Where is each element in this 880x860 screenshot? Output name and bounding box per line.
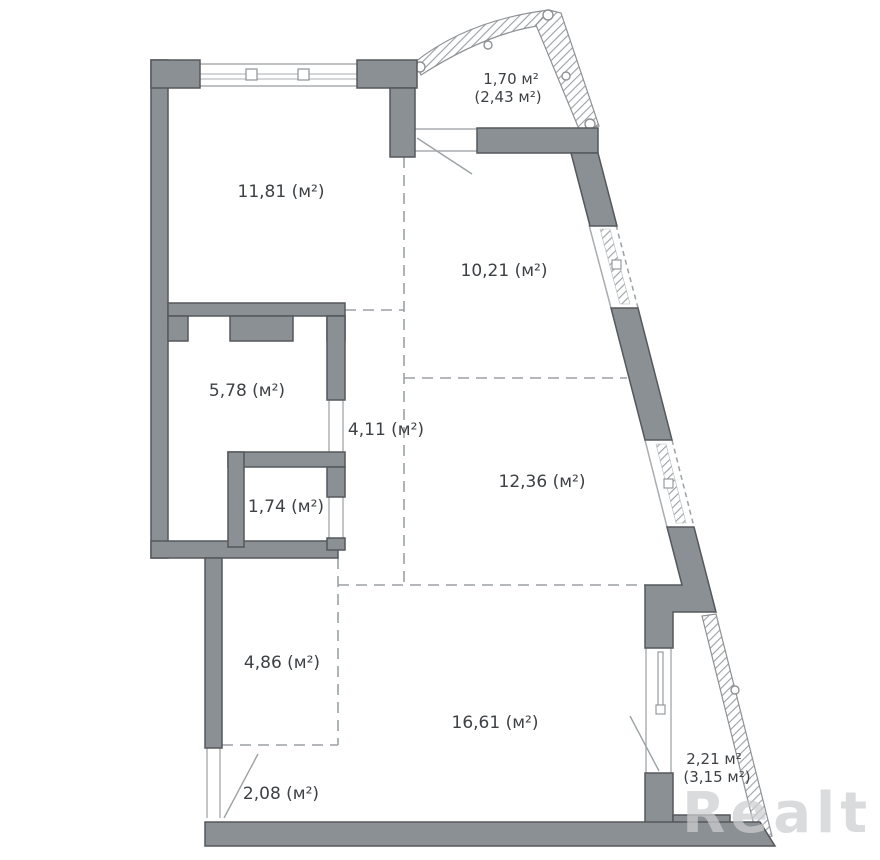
label-balcony-top-area: 1,70 м² (483, 70, 539, 88)
wall-top-left-corner (151, 60, 200, 88)
label-room-12-36: 12,36 (м²) (499, 472, 586, 492)
wall-room578-top (168, 303, 345, 316)
window-mullion-icon (612, 260, 621, 269)
window-top-gap (200, 63, 357, 87)
wall-balcony-top-sill (477, 128, 598, 153)
window-mullion-icon (246, 69, 257, 80)
balcony-joint-icon (562, 72, 570, 80)
window-top (200, 63, 357, 87)
label-room-2-08: 2,08 (м²) (243, 784, 319, 804)
wall-lower-left (205, 558, 222, 748)
wall-room578-right (327, 316, 345, 400)
label-room-5-78: 5,78 (м²) (209, 381, 285, 401)
label-room-16-61: 16,61 (м²) (452, 713, 539, 733)
wall-top-right-leg (390, 88, 415, 157)
label-room-4-86: 4,86 (м²) (244, 653, 320, 673)
wall-left-outer (151, 60, 168, 558)
label-room-11-81: 11,81 (м²) (238, 182, 325, 202)
balcony-joint-icon (543, 10, 553, 20)
label-balcony-bottom-area: 2,21 м² (686, 750, 742, 768)
floor-plan-drawing: 1,70 м² (2,43 м²) 11,81 (м²) 10,21 (м²) … (0, 0, 880, 860)
wall-room174-right-upper (327, 467, 345, 497)
wall-room174-left (228, 452, 244, 547)
duct-block (230, 316, 293, 341)
balcony-joint-icon (484, 41, 492, 49)
door-handle-icon (656, 705, 665, 714)
wall-balcony-bottom-pier (645, 773, 673, 825)
duct-block (168, 316, 188, 341)
wall-room174-top (228, 452, 345, 467)
balcony-joint-icon (731, 686, 739, 694)
label-room-10-21: 10,21 (м²) (461, 261, 548, 281)
window-mullion-icon (298, 69, 309, 80)
label-hall-4-11: 4,11 (м²) (348, 420, 424, 440)
realt-watermark: Realt (682, 781, 872, 846)
wall-top-right (357, 60, 417, 88)
door-leaf (658, 652, 663, 708)
label-room-1-74: 1,74 (м²) (248, 497, 324, 517)
floor-plan-page: 1,70 м² (2,43 м²) 11,81 (м²) 10,21 (м²) … (0, 0, 880, 860)
window-mullion-icon (664, 479, 673, 488)
label-balcony-top-total: (2,43 м²) (474, 88, 541, 106)
wall-room174-right-lower (327, 538, 345, 550)
